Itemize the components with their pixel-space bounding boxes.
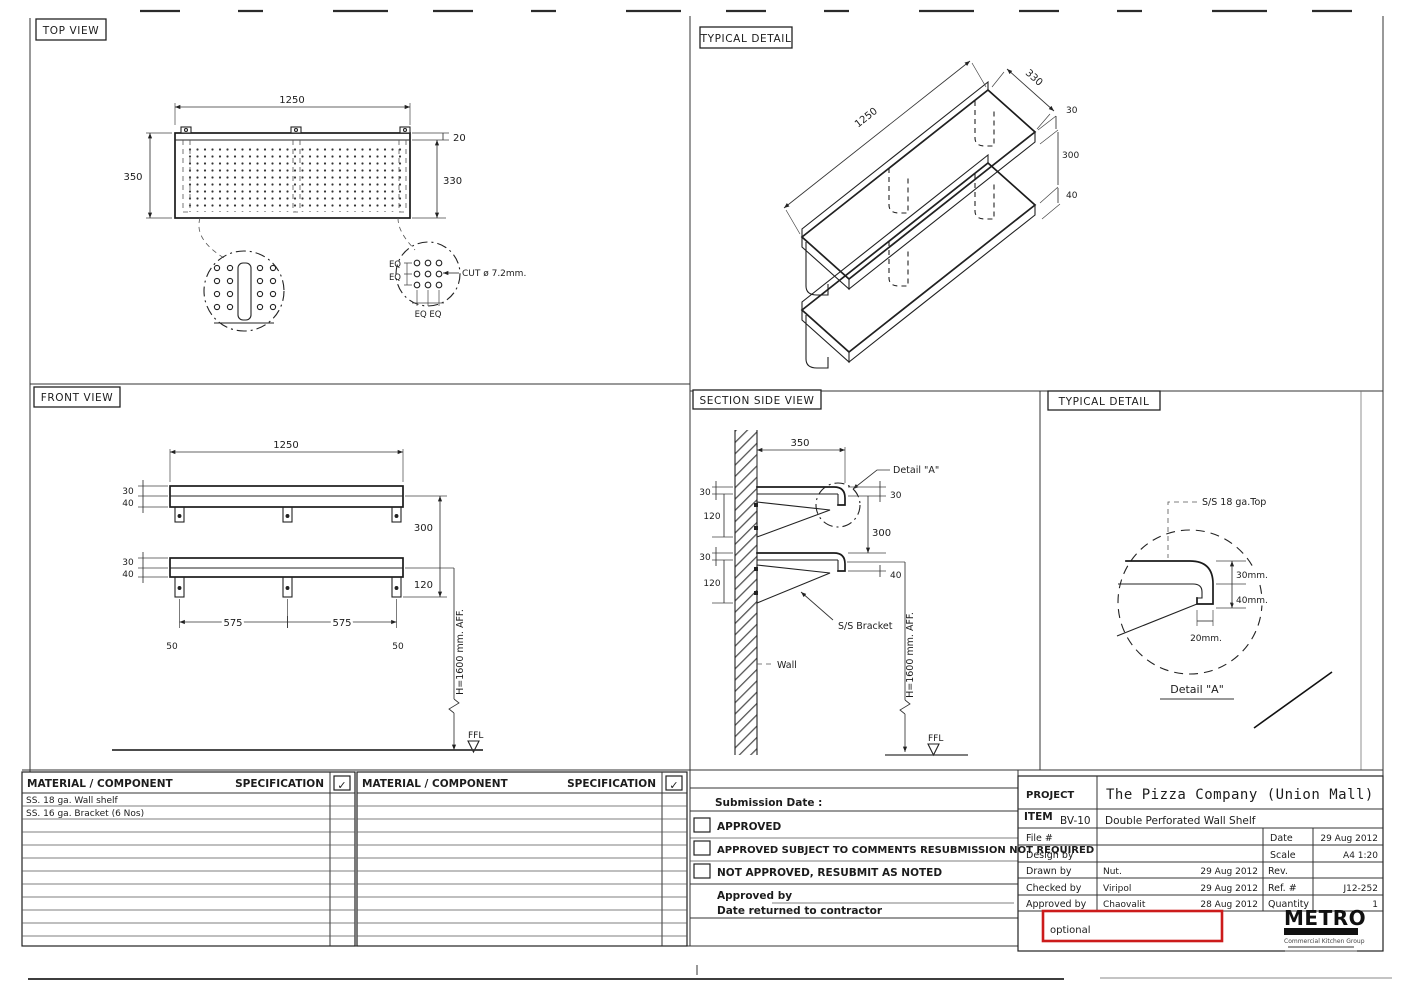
section-labels: S/S Bracket Wall xyxy=(757,592,893,671)
perforation-detail-circle: EQ EQ EQ EQ CUT ø 7.2mm. xyxy=(389,242,526,320)
dim-label: 120 xyxy=(414,580,433,591)
design-by-label: Design by xyxy=(1026,850,1074,861)
dim-label: 50 xyxy=(166,642,178,652)
drawn-date: 29 Aug 2012 xyxy=(1200,867,1258,877)
detail-a-panel: TYPICAL DETAIL S/S 18 ga.Top 30mm. 40mm.… xyxy=(1048,391,1332,728)
eq-bottom-label: EQ EQ xyxy=(415,310,442,320)
option-approved: APPROVED xyxy=(717,821,782,833)
dim-label: 330 xyxy=(1023,68,1045,89)
dim-label: 30 xyxy=(122,558,134,568)
top-view-panel: TOP VIEW 1250 350 xyxy=(36,19,526,331)
front-upper-shelf xyxy=(170,486,403,522)
dim-label: 330 xyxy=(443,176,462,187)
material-note: S/S 18 ga.Top xyxy=(1202,497,1266,508)
optional-text: optional xyxy=(1050,925,1091,936)
item-code: BV-10 xyxy=(1060,815,1091,827)
section-dim-depth: 350 xyxy=(757,438,845,483)
approved-by-label: Approved by xyxy=(1026,899,1087,910)
scanned-shop-drawing: TOP VIEW 1250 350 xyxy=(0,0,1403,992)
section-dim-right: 30 300 40 xyxy=(848,481,902,581)
iso-lower-shelf xyxy=(802,155,1035,368)
iso-dim-depth: 330 xyxy=(992,68,1054,129)
eq-label: EQ xyxy=(389,273,401,283)
front-dim-left-lower: 30 40 xyxy=(122,552,168,583)
dim-label: 300 xyxy=(1062,151,1079,161)
not-approved-checkbox xyxy=(694,864,710,878)
dim-label: 300 xyxy=(414,523,433,534)
dim-top-width: 1250 xyxy=(175,95,410,125)
front-dim-left-upper: 30 40 xyxy=(122,480,168,513)
dim-label: 30 xyxy=(890,491,902,501)
detail-ref-label: Detail "A" xyxy=(893,465,939,476)
project-label: PROJECT xyxy=(1026,790,1074,801)
dim-label: 120 xyxy=(703,512,720,522)
option-not-approved: NOT APPROVED, RESUBMIT AS NOTED xyxy=(717,867,942,879)
cut-note: CUT ø 7.2mm. xyxy=(462,269,526,279)
dim-label: 120 xyxy=(703,579,720,589)
ref-label: Ref. # xyxy=(1268,883,1297,894)
dim-label: 30mm. xyxy=(1236,571,1268,581)
wall-label: Wall xyxy=(777,660,797,671)
logo-text: METRO xyxy=(1284,906,1366,930)
iso-dim-width: 1250 xyxy=(784,61,986,234)
material-row: SS. 16 ga. Bracket (6 Nos) xyxy=(26,809,144,819)
col-header-spec: SPECIFICATION xyxy=(235,778,324,790)
col-header-component: MATERIAL / COMPONENT xyxy=(27,778,173,790)
check-mark: ✓ xyxy=(669,779,678,792)
section-dim-left-upper: 30 120 xyxy=(699,481,733,537)
quantity-value: 1 xyxy=(1372,900,1378,910)
iso-detail-panel: TYPICAL DETAIL 1250 xyxy=(700,27,1080,368)
dim-label: 40 xyxy=(1066,191,1078,201)
date-returned-label: Date returned to contractor xyxy=(717,905,883,917)
dim-top-inner: 330 xyxy=(412,140,462,218)
col-header-component: MATERIAL / COMPONENT xyxy=(362,778,508,790)
eq-label: EQ xyxy=(389,260,401,270)
front-lower-shelf xyxy=(170,558,403,597)
detail-a-drawing: S/S 18 ga.Top 30mm. 40mm. 20mm. Detail "… xyxy=(1117,497,1332,728)
slot-detail-circle xyxy=(204,251,284,331)
scale-label: Scale xyxy=(1270,850,1296,861)
material-table-right: MATERIAL / COMPONENT SPECIFICATION ✓ xyxy=(357,772,687,946)
dim-label: 40mm. xyxy=(1236,596,1268,606)
perforation-field xyxy=(186,146,404,212)
dim-label: 30 xyxy=(1066,106,1078,116)
iso-upper-shelf xyxy=(802,82,1035,295)
ffl-label: FFL xyxy=(468,731,483,741)
dim-label: 575 xyxy=(332,618,351,629)
front-dim-spacing: 575 575 50 50 xyxy=(166,599,404,652)
logo-bar xyxy=(1284,928,1358,935)
date-label: Date xyxy=(1270,833,1293,844)
drawn-by-name: Nut. xyxy=(1103,867,1122,877)
metro-logo: METRO Commercial Kitchen Group xyxy=(1284,906,1366,952)
material-table-left: MATERIAL / COMPONENT SPECIFICATION ✓ SS.… xyxy=(22,772,355,946)
file-label: File # xyxy=(1026,833,1053,844)
height-note: H=1600 mm. AFF. xyxy=(455,609,466,695)
front-dim-width: 1250 xyxy=(170,440,403,482)
approved-subject-checkbox xyxy=(694,841,710,855)
bracket-tabs xyxy=(181,127,410,133)
iso-title: TYPICAL DETAIL xyxy=(700,33,792,45)
approved-date: 28 Aug 2012 xyxy=(1200,900,1258,910)
drawing-canvas: TOP VIEW 1250 350 xyxy=(0,0,1403,992)
dim-label: 1250 xyxy=(279,95,304,106)
check-mark: ✓ xyxy=(337,779,346,792)
detail-title: TYPICAL DETAIL xyxy=(1058,396,1150,408)
dim-label: 575 xyxy=(223,618,242,629)
section-upper-shelf xyxy=(754,487,845,537)
dim-label: 20 xyxy=(453,133,466,144)
dim-label: 50 xyxy=(392,642,404,652)
detail-caption: Detail "A" xyxy=(1170,683,1224,696)
dim-label: 30 xyxy=(122,487,134,497)
material-row: SS. 18 ga. Wall shelf xyxy=(26,796,119,806)
front-height-dim: H=1600 mm. AFF. FFL xyxy=(112,568,483,752)
dim-label: 350 xyxy=(123,172,142,183)
dim-back-lip: 20 xyxy=(412,133,466,144)
section-lower-shelf xyxy=(754,553,845,603)
dim-label: 30 xyxy=(699,553,711,563)
approved-by-label: Approved by xyxy=(717,890,792,902)
item-label: ITEM xyxy=(1024,811,1053,823)
section-height-dim: H=1600 mm. AFF. FFL xyxy=(847,562,968,755)
bracket-label: S/S Bracket xyxy=(838,621,893,632)
item-name: Double Perforated Wall Shelf xyxy=(1105,815,1256,827)
rev-label: Rev. xyxy=(1268,866,1288,877)
dim-label: 40 xyxy=(122,570,134,580)
dim-label: 20mm. xyxy=(1190,634,1222,644)
section-dim-left-lower: 30 120 xyxy=(699,547,733,603)
dim-label: 30 xyxy=(699,488,711,498)
submission-date-label: Submission Date : xyxy=(715,797,822,809)
approved-checkbox xyxy=(694,818,710,832)
dim-label: 40 xyxy=(890,571,902,581)
checked-date: 29 Aug 2012 xyxy=(1200,884,1258,894)
optional-annotation: optional xyxy=(1043,911,1222,941)
dim-label: 350 xyxy=(790,438,809,449)
height-note: H=1600 mm. AFF. xyxy=(905,612,916,698)
project-name: The Pizza Company (Union Mall) xyxy=(1106,787,1374,803)
dim-label: 40 xyxy=(122,499,134,509)
ffl-label: FFL xyxy=(928,734,943,744)
top-view-title: TOP VIEW xyxy=(42,25,99,37)
col-header-spec: SPECIFICATION xyxy=(567,778,656,790)
approved-by-name: Chaovalit xyxy=(1103,900,1146,910)
front-view-title: FRONT VIEW xyxy=(41,392,114,404)
section-view-panel: SECTION SIDE VIEW Detail "A" xyxy=(693,390,968,755)
front-view-panel: FRONT VIEW 1250 xyxy=(34,387,483,752)
front-dim-right: 300 120 xyxy=(403,496,454,597)
checked-by-label: Checked by xyxy=(1026,883,1082,894)
section-title: SECTION SIDE VIEW xyxy=(700,395,815,407)
dim-label: 1250 xyxy=(853,106,880,130)
logo-tagline: Commercial Kitchen Group xyxy=(1284,938,1365,945)
title-block: PROJECT The Pizza Company (Union Mall) I… xyxy=(1018,776,1383,952)
wall-hatch xyxy=(735,430,757,755)
dim-label: 1250 xyxy=(273,440,298,451)
ref-value: J12-252 xyxy=(1342,884,1378,894)
dim-label: 300 xyxy=(872,528,891,539)
checked-by-name: Viripol xyxy=(1103,884,1131,894)
dim-top-depth: 350 xyxy=(123,133,172,218)
scale-value: A4 1:20 xyxy=(1343,851,1378,861)
drawn-by-label: Drawn by xyxy=(1026,866,1072,877)
date-value: 29 Aug 2012 xyxy=(1320,834,1378,844)
iso-dim-right: 30 300 40 xyxy=(1038,106,1079,219)
scan-artifact-line xyxy=(1254,672,1332,728)
